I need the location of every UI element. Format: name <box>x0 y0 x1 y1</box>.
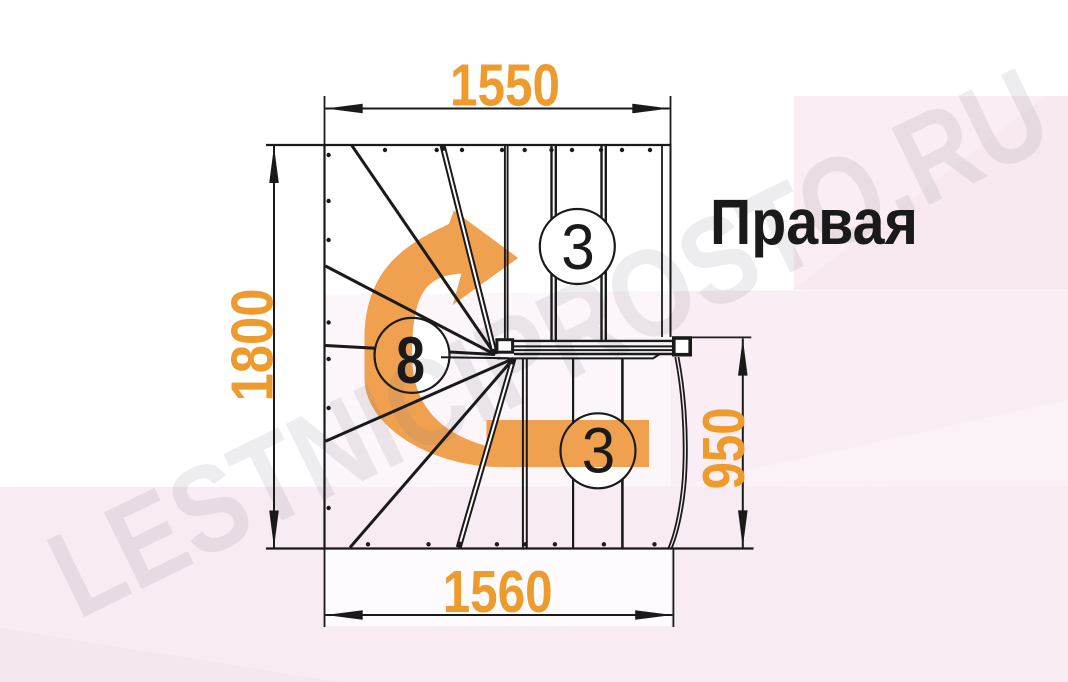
svg-text:1800: 1800 <box>220 289 286 402</box>
svg-text:3: 3 <box>561 211 595 283</box>
svg-text:950: 950 <box>691 407 757 489</box>
svg-text:Правая: Правая <box>710 186 918 258</box>
svg-text:1560: 1560 <box>443 559 553 625</box>
svg-text:1550: 1550 <box>450 53 560 119</box>
svg-text:3: 3 <box>582 415 616 487</box>
svg-text:8: 8 <box>396 323 425 397</box>
